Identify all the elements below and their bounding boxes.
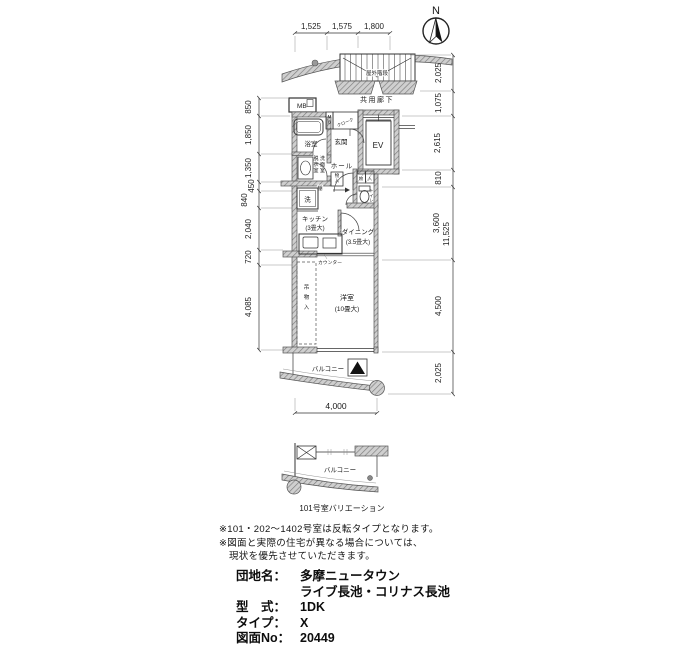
dim-right-7: 2,025 xyxy=(434,362,443,383)
dim-right-5: 3,600 xyxy=(432,212,441,233)
dining-size-label: (3.5畳大) xyxy=(346,238,370,246)
dim-left-2: 1,850 xyxy=(244,124,253,145)
dim-right-overall: 11,525 xyxy=(442,222,451,246)
notes-block: ※101・202〜1402号室は反転タイプとなります。 ※図面と実際の住宅が異な… xyxy=(219,523,439,564)
washbasin-bowl xyxy=(301,161,311,175)
kitchen-stove xyxy=(323,238,336,248)
dim-left-4: 450 xyxy=(247,179,256,193)
info-label xyxy=(236,585,300,601)
info-row: 団地名： 多摩ニュータウン xyxy=(236,569,450,585)
meter-box-label: MB xyxy=(297,103,307,110)
dim-left-8: 4,085 xyxy=(244,296,253,317)
info-row: ライブ長池・コリナス長池 xyxy=(236,585,450,601)
dimension-chain-top: 1,525 1,575 1,800 xyxy=(295,22,390,52)
toilet-label: トイレ xyxy=(369,188,373,203)
dim-top-2: 1,575 xyxy=(332,22,353,31)
balcony-area: バルコニー xyxy=(280,359,385,396)
elevator-area: EV xyxy=(363,115,394,165)
hanging-closet xyxy=(297,262,316,344)
toilet-shelf-char2: 入 xyxy=(368,176,373,181)
variation-wall-block xyxy=(355,446,388,456)
western-room-label: 洋室 xyxy=(340,293,354,302)
info-value: X xyxy=(300,616,308,632)
dim-right-4: 810 xyxy=(434,171,443,185)
counter-label: カウンター xyxy=(318,259,342,266)
note-line: 現状を優先させていただきます。 xyxy=(219,550,439,564)
entrance-label: 玄関 xyxy=(335,137,348,146)
dim-right-2: 1,075 xyxy=(434,92,443,113)
bathroom-area: 浴室 xyxy=(294,119,326,152)
hanging-closet-label: 吊物入 xyxy=(304,284,310,311)
info-row: タイプ： X xyxy=(236,616,450,632)
hall-washroom-area: ホール 脱衣室 洗面室 棚 物入 xyxy=(298,155,353,193)
kitchen-label: キッチン xyxy=(302,215,328,223)
info-label: 型 式： xyxy=(236,600,300,616)
dim-left-5: 840 xyxy=(240,193,249,207)
dimension-chain-left: 850 1,850 1,350 450 840 2,040 720 4,085 xyxy=(240,98,295,350)
variation-pillar xyxy=(287,480,301,494)
toilet-bowl xyxy=(360,191,369,203)
outdoor-stairs-label: 屋外階段 xyxy=(366,69,389,77)
info-value: ライブ長池・コリナス長池 xyxy=(300,585,450,601)
note-line: ※101・202〜1402号室は反転タイプとなります。 xyxy=(219,523,439,537)
outdoor-stairs-area: 屋外階段 共用廊下 xyxy=(282,54,452,104)
cloak-label: クローク xyxy=(336,117,355,129)
balcony-label: バルコニー xyxy=(312,365,344,373)
variation-post xyxy=(368,476,373,481)
dim-right-1: 2,025 xyxy=(434,62,443,83)
dim-top-1: 1,525 xyxy=(301,22,322,31)
north-label: N xyxy=(432,5,440,17)
north-arrow: N xyxy=(423,5,449,44)
washroom-label-left: 脱衣室 xyxy=(313,155,318,174)
dim-left-7: 720 xyxy=(244,250,253,264)
compass-needle-light xyxy=(430,18,437,43)
stairs-landing-right xyxy=(379,81,417,94)
info-value: 多摩ニュータウン xyxy=(300,569,400,585)
dimension-chain-right: 2,025 1,075 2,615 810 3,600 4,500 2,025 … xyxy=(382,55,453,394)
hall-label: ホール xyxy=(331,162,354,170)
dim-right-6: 4,500 xyxy=(434,295,443,316)
dining-label: ダイニング xyxy=(342,227,375,236)
kitchen-size-label: (3畳大) xyxy=(305,224,324,232)
variation-drawing: バルコニー 101号室バリエーション xyxy=(282,443,388,513)
bathtub-inner xyxy=(297,122,321,133)
info-value: 1DK xyxy=(300,600,325,616)
info-value: 20449 xyxy=(300,631,335,647)
info-label: 図面No： xyxy=(236,631,300,647)
info-block: 団地名： 多摩ニュータウン ライブ長池・コリナス長池 型 式： 1DK タイプ：… xyxy=(236,569,450,647)
western-room-area: 吊物入 洋室 (10畳大) xyxy=(297,262,359,344)
info-row: 型 式： 1DK xyxy=(236,600,450,616)
dim-left-6: 2,040 xyxy=(244,218,253,239)
dim-top-3: 1,800 xyxy=(364,22,385,31)
step-arrow xyxy=(345,188,350,193)
dim-bottom: 4,000 xyxy=(325,401,347,411)
kitchen-sink xyxy=(303,237,318,248)
floor-plan-page: N 1,525 1,575 1,800 屋外階段 共用廊下 xyxy=(0,0,700,650)
balcony-pillar xyxy=(370,381,385,396)
unit-walls xyxy=(281,98,415,378)
kitchen-dining-area: 洗 キッチン (3畳大) ダイニング (3.5畳大) カウンター xyxy=(297,188,375,266)
washer-label: 洗 xyxy=(304,195,311,204)
compass-needle-dark xyxy=(436,18,443,43)
toilet-shelf-char1: 物 xyxy=(359,175,363,182)
note-line: ※図面と実際の住宅が異なる場合については、 xyxy=(219,537,439,551)
variation-caption: 101号室バリエーション xyxy=(299,503,384,513)
info-label: タイプ： xyxy=(236,616,300,632)
stairs-landing-left xyxy=(335,81,375,94)
variation-balcony-label: バルコニー xyxy=(324,466,356,474)
dim-right-3: 2,615 xyxy=(433,132,442,153)
western-room-size-label: (10畳大) xyxy=(335,304,360,313)
info-row: 図面No： 20449 xyxy=(236,631,450,647)
elevator-label: EV xyxy=(373,141,384,150)
dimension-bottom: 4,000 xyxy=(295,398,377,413)
common-corridor-label: 共用廊下 xyxy=(360,95,394,104)
railing-post xyxy=(312,60,318,66)
dim-left-3: 1,350 xyxy=(244,157,253,178)
dim-left-1: 850 xyxy=(244,100,253,114)
toilet-area: 物 入 トイレ xyxy=(346,171,374,205)
info-label: 団地名： xyxy=(236,569,300,585)
